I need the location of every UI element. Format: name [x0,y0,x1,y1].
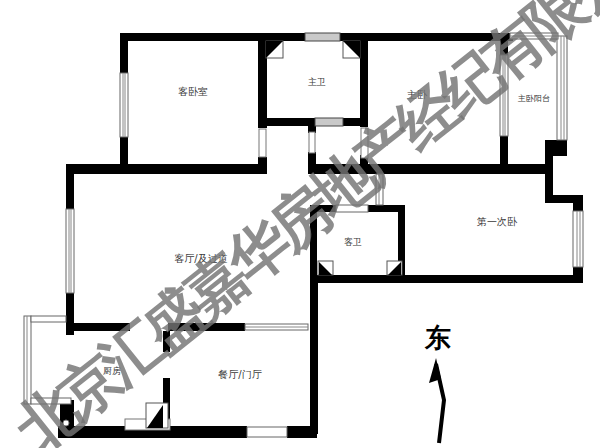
door-pivot-icon [63,420,69,426]
floorplan-drawing: 客卧室 主卫 主卧 主卧阳台 第一次卧 客厅/及过道 客卫 餐厅/门厅 厨房 东 [0,0,600,448]
wall-living-left-top [66,164,74,209]
window-secondbedroom [573,211,583,267]
windows [24,33,583,437]
window-masterbedroom [500,55,508,136]
wall-masterbedroom-right-top [500,33,508,55]
wall-guestbedroom-left-bottom [120,137,128,174]
window-living [66,209,74,293]
compass-east-label: 东 [424,323,451,353]
wall-living-dining-b [168,323,245,331]
wall-masterbedroom-right-bottom [500,136,508,170]
room-label-master-bath: 主卫 [308,77,326,87]
room-label-kitchen: 厨房 [103,366,121,376]
wall-masterbath-bottom [262,118,366,126]
window-bay-bottom [31,398,71,404]
window-guestbath [336,205,368,212]
wall-guestbedroom-left-top [120,33,128,73]
window-bottom [247,427,287,437]
wall-kitchen-corner [60,400,74,438]
wall-guestbath-left [310,205,317,275]
door-masterbedroom [361,128,368,158]
wall-mid-left [66,164,266,174]
wall-masterbath-right [360,33,368,127]
wall-secondbedroom-right-bottom [573,267,583,283]
room-label-master-balcony: 主卧阳台 [517,94,550,103]
window-guestbedroom [120,73,128,137]
window-bay-top [31,316,66,322]
door-corridor [309,132,315,153]
wall-kitchen-divider-top [163,331,170,352]
room-label-second-bedroom: 第一次卧 [477,216,518,227]
room-label-guest-bath: 客卫 [344,237,362,247]
room-label-master-bedroom: 主卧 [406,89,428,100]
door-guestbedroom [259,129,266,157]
room-label-guest-bedroom: 客卧室 [178,86,208,97]
wall-corridor-stub-b [308,152,316,164]
wall-living-left-bottom [66,293,74,335]
room-label-dining: 餐厅/门厅 [218,369,261,380]
window-balcony-right [557,36,567,140]
compass: 东 [424,323,451,443]
room-label-living: 客厅/及过道 [174,253,227,264]
wall-mid-right [308,164,550,174]
window-masterbath-bottom [315,118,343,126]
wall-living-dining-a [74,323,130,331]
floorplan-image: 客卧室 主卫 主卧 主卧阳台 第一次卧 客厅/及过道 客卫 餐厅/门厅 厨房 东… [0,0,600,448]
wall-dining-right [310,275,318,434]
wall-secondbedroom-bottom [310,275,583,283]
wall-secondbedroom-right-top [573,195,583,211]
wall-secondbedroom-left [545,148,553,203]
window-masterbath-top [305,33,340,41]
wall-guestbedroom-right-stub [258,157,267,174]
